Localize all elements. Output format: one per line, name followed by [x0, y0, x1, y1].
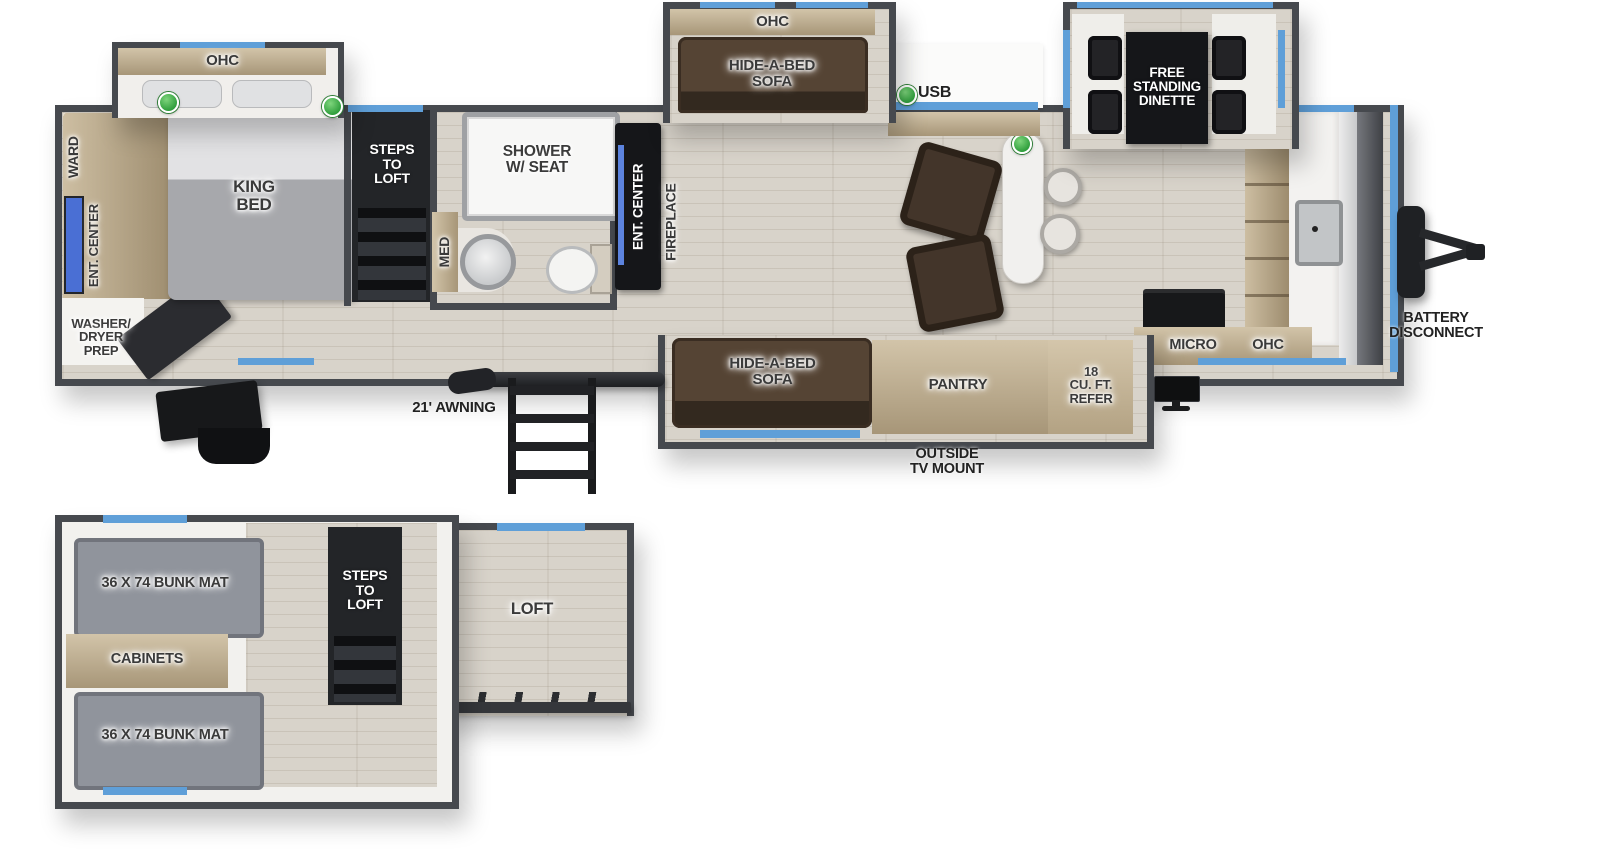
cabinets-label: CABINETS	[84, 648, 210, 672]
free-standing-dinette-label: FREE STANDING DINETTE	[1124, 56, 1210, 118]
main-floorplan: OHC KING BED WARD ENT. CENTER WASHER/ DR…	[0, 0, 1600, 500]
ent-center-label-fireplace: ENT. CENTER	[615, 125, 661, 288]
micro-label: MICRO	[1156, 335, 1230, 357]
steps-to-loft-label-upper: STEPS TO LOFT	[328, 556, 402, 624]
outside-tv-base	[1162, 406, 1190, 411]
loft-floorplan: 36 X 74 BUNK MAT CABINETS 36 X 74 BUNK M…	[0, 500, 700, 858]
loft-label: LOFT	[492, 596, 572, 624]
refer-label: 18 CU. FT. REFER	[1049, 358, 1133, 412]
window-dinette-top	[1077, 2, 1273, 8]
kitchen-faucet	[1312, 226, 1318, 232]
bar-stool-2	[1040, 214, 1080, 254]
shower-label: SHOWER W/ SEAT	[478, 136, 596, 184]
accent-chair-2	[905, 233, 1006, 334]
hitch-tongue-box	[1397, 206, 1425, 298]
window-loft-top	[497, 523, 585, 531]
pantry-label: PANTRY	[912, 372, 1004, 398]
steps-to-loft-label-main: STEPS TO LOFT	[348, 130, 436, 198]
awning-label: 21' AWNING	[398, 396, 510, 420]
bar-stool-1	[1044, 168, 1082, 206]
ent-center-label-rear: ENT. CENTER	[80, 190, 108, 302]
ohc-label-sofa-slide: OHC	[700, 10, 845, 34]
bed-led-left-icon	[158, 92, 179, 113]
window-bottom-kitchen	[1198, 358, 1346, 365]
king-bed-label: KING BED	[198, 172, 310, 220]
steps-treads-upper	[334, 636, 396, 702]
window-bunk-top	[103, 515, 187, 523]
bed-pillow-left	[142, 80, 222, 108]
window-bunk-bottom	[103, 787, 187, 795]
hide-a-bed-label-bottom: HIDE-A-BED SOFA	[700, 350, 845, 394]
outside-tv-icon	[1154, 376, 1200, 402]
island-led-icon	[1012, 134, 1032, 154]
bunk-mat-bottom-label: 36 X 74 BUNK MAT	[78, 724, 252, 748]
bathroom-bottom-wall	[430, 303, 617, 310]
range-cooktop	[1143, 293, 1225, 331]
entry-steps-rungs	[510, 386, 594, 490]
outside-tv-label: OUTSIDE TV MOUNT	[888, 440, 1006, 484]
usb-label: USB	[918, 80, 970, 106]
dinette-chair-4	[1212, 90, 1246, 134]
battery-disconnect-label: BATTERY DISCONNECT	[1380, 306, 1492, 346]
loft-railing-bar	[435, 702, 631, 713]
dinette-chair-3	[1212, 36, 1246, 80]
bed-led-right-icon	[322, 96, 343, 117]
bathroom-sink	[460, 234, 516, 290]
window-bottom-bedroom	[238, 358, 314, 365]
window-sofa-slide-2	[796, 2, 868, 8]
usb-lower-cabinet	[888, 112, 1040, 136]
toilet	[546, 246, 598, 294]
bed-pillow-right	[232, 80, 312, 108]
ohc-label-bedroom: OHC	[150, 48, 295, 74]
rv-floorplan-page: { "colors": { "wall": "#46494e", "floor_…	[0, 0, 1600, 858]
kitchen-sink	[1295, 200, 1343, 266]
steps-treads-main	[358, 208, 426, 300]
washer-dryer-label: WASHER/ DRYER PREP	[54, 310, 148, 364]
dinette-chair-1	[1088, 36, 1122, 80]
window-sofa-slide-1	[700, 2, 775, 8]
exterior-griddle-base	[198, 428, 270, 464]
hitch-coupler	[1466, 244, 1485, 260]
usb-led-icon	[897, 85, 917, 105]
bunk-mat-top-label: 36 X 74 BUNK MAT	[78, 572, 252, 596]
med-label: MED	[426, 214, 462, 290]
ward-label: WARD	[56, 124, 90, 190]
fireplace-label: FIREPLACE	[656, 148, 686, 296]
window-dinette-left	[1063, 30, 1070, 108]
ohc-label-kitchen: OHC	[1238, 335, 1298, 357]
window-dinette-right	[1278, 30, 1285, 108]
kitchen-island	[1002, 132, 1044, 284]
window-bottom-slide	[700, 430, 860, 438]
window-top-bath	[348, 105, 423, 112]
dinette-chair-2	[1088, 90, 1122, 134]
hide-a-bed-label-top: HIDE-A-BED SOFA	[702, 52, 842, 96]
